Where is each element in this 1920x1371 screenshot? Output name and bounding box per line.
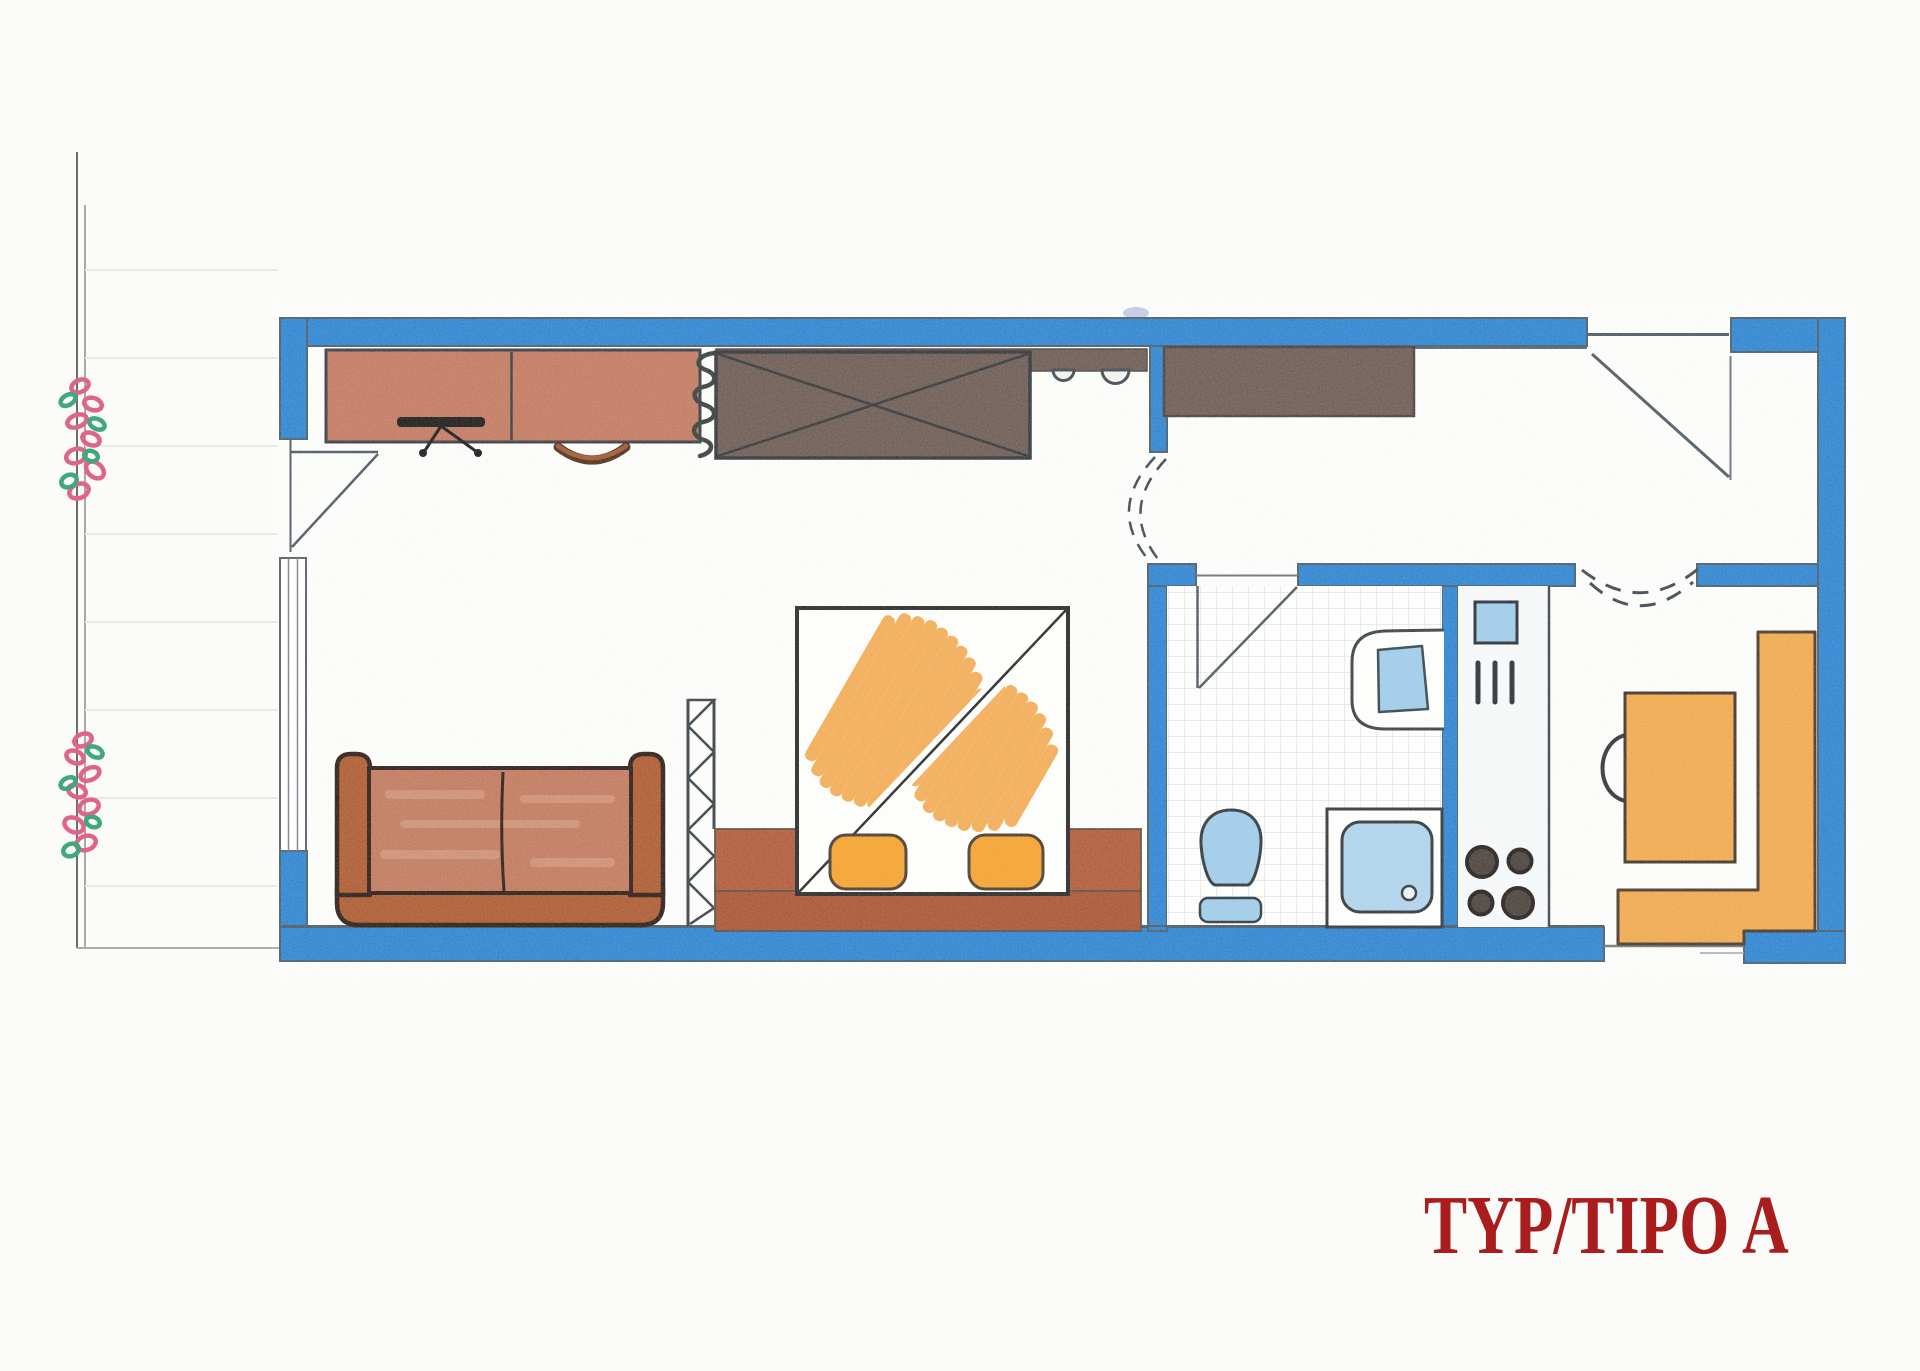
svg-text:TYP/TIPO A: TYP/TIPO A bbox=[1424, 1179, 1789, 1272]
